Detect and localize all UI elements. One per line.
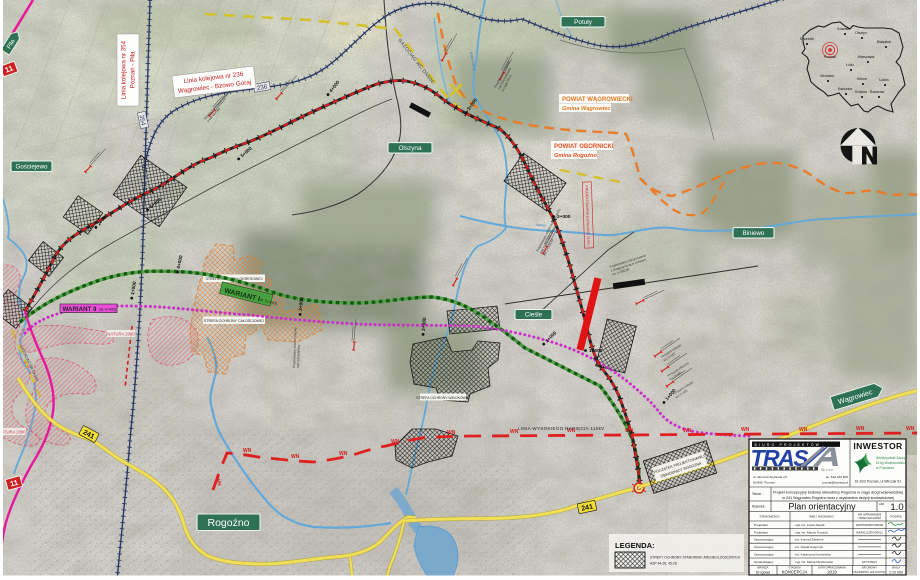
svg-text:1:10 000: 1:10 000: [889, 570, 903, 574]
svg-text:Sprawdzający: Sprawdzający: [754, 560, 774, 564]
svg-text:WN: WN: [243, 448, 252, 454]
svg-text:Wełna: Wełna: [536, 223, 546, 228]
svg-text:WARIANT II: WARIANT II: [63, 306, 97, 313]
svg-text:mgr inż. Marek Myszkowski: mgr inż. Marek Myszkowski: [795, 560, 833, 564]
svg-text:STANOWISKO: STANOWISKO: [759, 514, 780, 518]
svg-text:Projektant: Projektant: [754, 523, 768, 527]
svg-text:WN: WN: [339, 451, 348, 457]
svg-text:WN: WN: [625, 428, 634, 434]
svg-text:SKALA: SKALA: [892, 566, 901, 570]
svg-text:inż. Dawid Kasprzyk: inż. Dawid Kasprzyk: [795, 545, 823, 549]
svg-text:Plan orientacyjny: Plan orientacyjny: [789, 501, 857, 511]
svg-text:Potuły: Potuły: [574, 19, 593, 26]
svg-text:ul. Janusza Zeylanda 1/7: ul. Janusza Zeylanda 1/7: [753, 475, 788, 479]
svg-text:Olszyna: Olszyna: [398, 145, 422, 152]
svg-text:WN: WN: [741, 427, 750, 433]
svg-text:Opracowujący: Opracowujący: [754, 538, 774, 542]
svg-text:Kielce: Kielce: [857, 77, 867, 81]
svg-text:WN: WN: [856, 426, 865, 432]
svg-text:nad rzeką Wełną: nad rzeką Wełną: [296, 345, 301, 369]
svg-text:AZP 44-28, 45-28: AZP 44-28, 45-28: [650, 562, 677, 566]
svg-text:2+000: 2+000: [557, 214, 571, 220]
svg-text:Projektant: Projektant: [754, 530, 768, 534]
svg-text:(dł. 6+055): (dł. 6+055): [99, 307, 116, 311]
svg-text:Szczecin: Szczecin: [800, 37, 814, 41]
svg-text:Lublin: Lublin: [879, 78, 889, 82]
svg-text:Gmina Rogoźno: Gmina Rogoźno: [554, 153, 597, 159]
svg-text:Biniewo: Biniewo: [743, 230, 765, 237]
svg-text:Drogowa: Drogowa: [756, 570, 770, 574]
svg-text:INWESTOR: INWESTOR: [853, 441, 903, 451]
svg-text:Gościejewo: Gościejewo: [16, 163, 49, 170]
svg-text:WN: WN: [291, 454, 300, 460]
svg-text:inż. Konrad Żabierek: inż. Konrad Żabierek: [795, 537, 824, 542]
svg-text:Warszawa: Warszawa: [858, 55, 875, 59]
svg-text:WN: WN: [683, 428, 692, 434]
svg-text:Wielkopolski Zarząd: Wielkopolski Zarząd: [876, 456, 907, 460]
svg-text:STREFA OCHRONY WIDOKOWEJ: STREFA OCHRONY WIDOKOWEJ: [416, 396, 470, 400]
svg-text:Łódź: Łódź: [846, 63, 854, 67]
svg-text:ASYSTENT: ASYSTENT: [862, 560, 877, 564]
svg-text:poczta@bptrasa.pl: poczta@bptrasa.pl: [822, 481, 848, 485]
svg-text:3+000: 3+000: [298, 297, 305, 311]
svg-text:60-808 Poznań: 60-808 Poznań: [753, 481, 775, 485]
svg-text:WN: WN: [799, 427, 808, 433]
svg-text:Opracowujący: Opracowujący: [754, 545, 774, 549]
svg-text:LINIA WYSOKIEGO NAPIĘCIA 110kV: LINIA WYSOKIEGO NAPIĘCIA 110kV: [518, 426, 605, 431]
svg-text:Poznań: Poznań: [824, 55, 836, 59]
svg-text:Rzeszów: Rzeszów: [870, 90, 885, 94]
svg-text:NATURA 2000: NATURA 2000: [107, 332, 135, 337]
svg-text:Dróg Wojewódzkich: Dróg Wojewódzkich: [876, 461, 907, 465]
svg-text:61-623 Poznań, ul.Wilczak 51: 61-623 Poznań, ul.Wilczak 51: [855, 480, 901, 484]
svg-text:I SPECJALNOŚĆ: I SPECJALNOŚĆ: [858, 515, 883, 520]
svg-text:Rogoźno: Rogoźno: [207, 517, 249, 529]
svg-text:Białystok: Białystok: [877, 40, 892, 44]
svg-text:Opracowująca: Opracowująca: [754, 553, 774, 557]
svg-text:Wrocław: Wrocław: [820, 74, 834, 78]
svg-text:Projekt koncepcyjny budowy obw: Projekt koncepcyjny budowy obwodnicy Rog…: [773, 489, 903, 494]
svg-text:KONCEPCJA: KONCEPCJA: [782, 570, 808, 575]
svg-text:mgr inż. Marcin Kucacki: mgr inż. Marcin Kucacki: [795, 530, 828, 534]
svg-text:nr 241 Wągrowiec-Rogoźno wraz: nr 241 Wągrowiec-Rogoźno wraz z uzyskani…: [782, 495, 894, 500]
svg-text:STREFY OCHRONY STANOWISK ARCHE: STREFY OCHRONY STANOWISK ARCHEOLOGICZNYC…: [650, 556, 741, 560]
svg-text:inż. Katarzyna Koźmińska: inż. Katarzyna Koźmińska: [795, 553, 831, 557]
svg-text:Kraków: Kraków: [855, 90, 867, 94]
svg-text:NR UMOWY: NR UMOWY: [862, 566, 877, 570]
svg-text:NATURA 2000: NATURA 2000: [0, 430, 26, 435]
svg-text:Poznań - Piła: Poznań - Piła: [130, 51, 137, 88]
svg-text:POWIAT OBORNICKI: POWIAT OBORNICKI: [554, 144, 614, 150]
svg-text:Olsztyn: Olsztyn: [855, 31, 867, 35]
svg-text:WKP/0329/POOD/06: WKP/0329/POOD/06: [856, 523, 884, 527]
svg-text:Sp. z o.o.: Sp. z o.o.: [821, 468, 834, 472]
svg-text:ARK: ARK: [879, 502, 885, 506]
svg-text:2+000: 2+000: [421, 317, 428, 331]
svg-text:PODPIS: PODPIS: [890, 514, 901, 518]
svg-text:IMIĘ I NAZWISKO: IMIĘ I NAZWISKO: [809, 514, 834, 518]
svg-text:WN: WN: [391, 439, 400, 445]
svg-text:291/4/DP/KU.obb.SOUTAL: 291/4/DP/KU.obb.SOUTAL: [853, 570, 886, 574]
svg-text:Gdańsk: Gdańsk: [837, 27, 850, 31]
svg-text:WN: WN: [906, 426, 915, 432]
svg-text:STREFA OCHRONY CAŁOŚCIOWEJ: STREFA OCHRONY CAŁOŚCIOWEJ: [204, 318, 264, 323]
svg-text:LEGENDA:: LEGENDA:: [615, 541, 655, 550]
svg-text:tel. 618 438 608: tel. 618 438 608: [826, 475, 848, 479]
svg-text:1.0: 1.0: [890, 502, 903, 513]
svg-text:Katowice: Katowice: [838, 87, 853, 91]
svg-text:2019: 2019: [827, 570, 837, 575]
svg-text:1+000: 1+000: [589, 348, 603, 354]
svg-text:WN: WN: [447, 430, 456, 436]
svg-text:mgr inż. Aneta Słowik: mgr inż. Aneta Słowik: [795, 523, 825, 527]
svg-text:Gmina Wągrowiec: Gmina Wągrowiec: [562, 106, 611, 112]
svg-text:POWIAT WĄGROWIECKI: POWIAT WĄGROWIECKI: [562, 97, 633, 103]
svg-text:Cieśle: Cieśle: [525, 312, 543, 319]
svg-text:WKP/0112/POOD/11: WKP/0112/POOD/11: [856, 530, 883, 534]
svg-text:w Poznaniu: w Poznaniu: [876, 466, 894, 470]
svg-text:Rysunek:: Rysunek:: [752, 505, 765, 509]
svg-text:Temat :: Temat :: [752, 492, 763, 496]
svg-text:Linia kolejowa nr 354: Linia kolejowa nr 354: [121, 40, 128, 99]
